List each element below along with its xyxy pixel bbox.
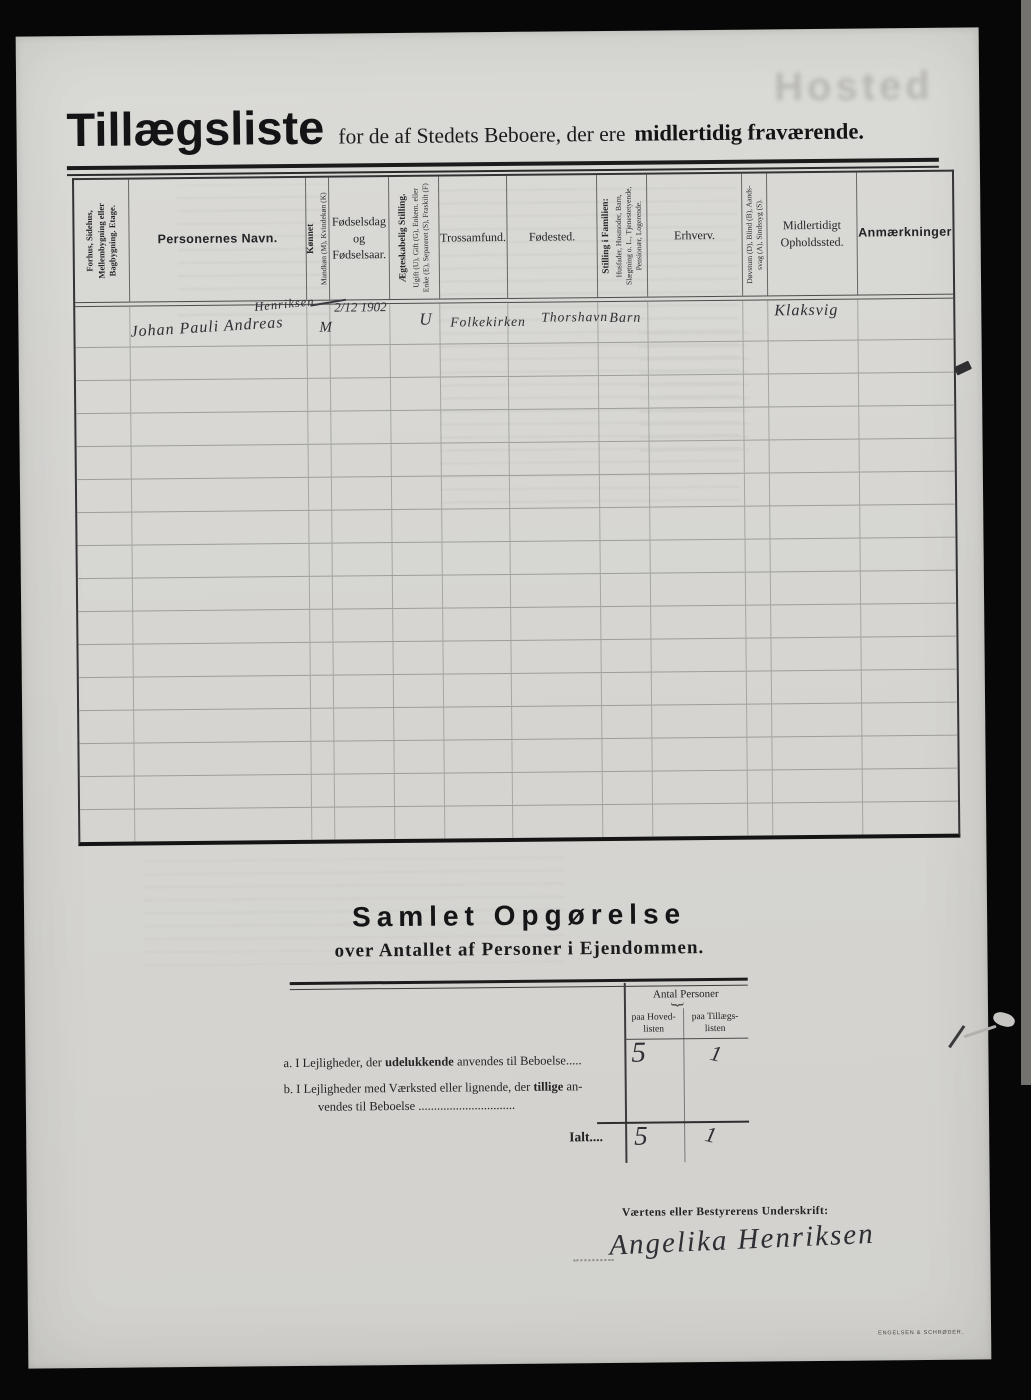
cell-foedested: [509, 409, 599, 442]
cell-navn: [134, 709, 311, 743]
entry-sex: M: [319, 320, 333, 337]
cell-koennet: [309, 445, 332, 477]
cell-aegteskabelig: [391, 345, 441, 377]
cell-opholdssted: [769, 407, 859, 440]
cell-koennet: [309, 511, 332, 543]
cell-opholdssted: [770, 473, 860, 506]
cell-erhverv: [650, 474, 745, 507]
cell-doevstum: [745, 473, 770, 505]
cell-stilling: [599, 343, 649, 375]
cell-anmaerkninger: [862, 670, 957, 703]
row-b-bold: tillige: [533, 1079, 563, 1093]
cell-opholdssted: [772, 671, 862, 704]
cell-aegteskabelig: [392, 477, 442, 509]
cell-trossamfund: [443, 608, 511, 641]
cell-erhverv: [649, 342, 744, 375]
census-table-header-row: Forhus, Sidehus, Mellembygning eller Bag…: [74, 172, 953, 303]
value-a-tillaegslisten: 1: [708, 1040, 725, 1068]
cell-doevstum: [747, 704, 772, 736]
cell-trossamfund: [445, 806, 513, 839]
cell-anmaerkninger: [861, 571, 956, 604]
cell-navn: [134, 676, 311, 710]
cell-foedested: [511, 607, 601, 640]
column-header-trossamfund: Trossamfund.: [439, 176, 508, 299]
cell-anmaerkninger: [862, 703, 957, 736]
column-header-foedested: Fødested.: [507, 175, 598, 298]
entry-temporary-residence: Klaksvig: [774, 302, 838, 321]
cell-navn: [133, 610, 310, 644]
cell-trossamfund: [441, 344, 509, 377]
column-header-aegteskabelig: Ægteskabelig Stilling.Ugift (U), Gift (G…: [389, 177, 440, 299]
summary-table-vline-left: [624, 983, 628, 1163]
cell-foedselsdag: [333, 642, 393, 675]
entry-family-position: Barn: [609, 311, 641, 327]
cell-doevstum: [744, 374, 769, 406]
column-header-foedselsdag: Fødselsdag og Fødselsaar.: [329, 177, 390, 300]
cell-bygning: [76, 381, 131, 414]
scan-edge-sliver: [1021, 0, 1031, 1085]
cell-trossamfund: [442, 443, 510, 476]
cell-erhverv: [650, 540, 745, 573]
cell-koennet: [309, 478, 332, 510]
cell-bygning: [75, 307, 130, 348]
cell-navn: [133, 544, 310, 578]
cell-doevstum: [746, 572, 771, 604]
cell-navn: [133, 643, 310, 677]
page-subtitle: for de af Stedets Beboere, der ere: [338, 122, 625, 150]
cell-erhverv: [650, 507, 745, 540]
row-a-text2: anvendes til Beboelse.....: [457, 1053, 582, 1068]
pen-mark: [948, 1025, 965, 1048]
row-b-text: I Lejligheder med Værksted eller lignend…: [296, 1080, 530, 1096]
cell-navn: [132, 445, 309, 479]
cell-foedested: [510, 508, 600, 541]
cell-erhverv: [653, 771, 748, 804]
cell-stilling: [601, 574, 651, 606]
rotated-label: Døvstum (D), Blind (B), Aands- svag (A),…: [744, 177, 765, 291]
cell-anmaerkninger: [863, 769, 958, 802]
cell-trossamfund: [442, 476, 510, 509]
cell-aegteskabelig: [393, 576, 443, 608]
cell-stilling: [602, 739, 652, 771]
cell-anmaerkninger: [860, 439, 955, 472]
cell-opholdssted: [771, 605, 861, 638]
census-table: Forhus, Sidehus, Mellembygning eller Bag…: [72, 170, 960, 846]
cell-erhverv: [649, 408, 744, 441]
cell-bygning: [79, 744, 134, 777]
cell-stilling: [603, 772, 653, 804]
cell-koennet: [310, 643, 333, 675]
column-header-bygning: Forhus, Sidehus, Mellembygning eller Bag…: [74, 180, 130, 303]
summary-row-b-line1: b. I Lejligheder med Værksted eller lign…: [284, 1079, 583, 1097]
cell-koennet: [308, 346, 331, 378]
cell-koennet: [310, 610, 333, 642]
cell-anmaerkninger: [863, 802, 958, 835]
cell-erhverv: [651, 573, 746, 606]
cell-doevstum: [748, 803, 773, 835]
cell-stilling: [600, 475, 650, 507]
cell-opholdssted: [773, 770, 863, 803]
row-a-prefix: a.: [283, 1056, 292, 1070]
cell-koennet: [311, 676, 334, 708]
cell-doevstum: [746, 638, 771, 670]
scanned-census-page: { "page": { "watermark": "Hosted", "prin…: [0, 0, 1031, 1400]
cell-bygning: [80, 810, 135, 843]
rotated-label: Ægteskabelig Stilling.Ugift (U), Gift (G…: [397, 181, 431, 295]
cell-stilling: [603, 805, 653, 837]
cell-koennet: [312, 775, 335, 807]
signature-dotted-line: [573, 1259, 613, 1261]
ink-smudge: [954, 361, 972, 376]
cell-anmaerkninger: [859, 373, 954, 406]
row-a-text: I Lejligheder, der: [295, 1055, 382, 1070]
cell-navn: [133, 577, 310, 611]
cell-navn: [135, 775, 312, 809]
row-b-text2: an-: [566, 1079, 582, 1093]
printer-mark: ENGELSEN & SCHRØDER.: [878, 1330, 964, 1337]
cell-bygning: [80, 777, 135, 810]
brace-glyph: }: [668, 1001, 685, 1008]
cell-anmaerkninger: [861, 604, 956, 637]
cell-foedselsdag: [332, 477, 392, 510]
cell-navn: [134, 742, 311, 776]
cell-opholdssted: [770, 539, 860, 572]
cell-anmaerkninger: [860, 505, 955, 538]
cell-bygning: [78, 645, 133, 678]
cell-opholdssted: [770, 506, 860, 539]
cell-trossamfund: [441, 377, 509, 410]
cell-doevstum: [748, 770, 773, 802]
cell-opholdssted: [770, 440, 860, 473]
cell-aegteskabelig: [393, 642, 443, 674]
cell-aegteskabelig: [393, 543, 443, 575]
cell-foedselsdag: [332, 510, 392, 543]
paper-sheet: Hosted Tillægsliste for de af Stedets Be…: [16, 27, 992, 1368]
cell-aegteskabelig: [391, 378, 441, 410]
summary-heading-block: Samlet Opgørelse over Antallet af Person…: [269, 897, 770, 963]
cell-opholdssted: [772, 737, 862, 770]
cell-erhverv: [652, 738, 747, 771]
cell-foedselsdag: [331, 345, 391, 378]
cell-anmaerkninger: [860, 538, 955, 571]
cell-navn: [131, 412, 308, 446]
cell-stilling: [600, 442, 650, 474]
cell-erhverv: [651, 606, 746, 639]
rotated-label: KønnetMandkøn (M), Kvindekøn (K): [305, 182, 329, 296]
cell-bygning: [78, 546, 133, 579]
cell-bygning: [79, 711, 134, 744]
cell-erhverv: [652, 705, 747, 738]
cell-erhverv: [653, 804, 748, 837]
signature-name: Angelika Henriksen: [609, 1218, 876, 1263]
cell-foedested: [512, 739, 602, 772]
cell-opholdssted: [769, 374, 859, 407]
cell-erhverv: [651, 639, 746, 672]
cell-doevstum: [747, 671, 772, 703]
page-subtitle-emphasis: midlertidig fraværende.: [634, 119, 864, 147]
cell-navn: [135, 808, 312, 842]
cell-koennet: [310, 544, 333, 576]
entry-marital-status: U: [419, 310, 432, 330]
cell-opholdssted: [773, 803, 863, 836]
cell-aegteskabelig: [395, 807, 445, 839]
cell-foedselsdag: [335, 774, 395, 807]
cell-trossamfund: [441, 410, 509, 443]
cell-stilling: [599, 376, 649, 408]
cell-anmaerkninger: [861, 637, 956, 670]
page-title: Tillægsliste: [66, 100, 324, 157]
cell-bygning: [77, 447, 132, 480]
cell-foedselsdag: [333, 543, 393, 576]
cell-doevstum: [744, 407, 769, 439]
rotated-label: Stilling i Familien:Husfader, Husmoder, …: [600, 179, 644, 293]
cell-foedested: [511, 574, 601, 607]
cell-foedselsdag: [331, 411, 391, 444]
cell-navn: [131, 379, 308, 413]
cell-bygning: [79, 678, 134, 711]
value-total-tillaegslisten: 1: [703, 1121, 720, 1149]
entry-faith: Folkekirken: [450, 314, 526, 331]
cell-koennet: [310, 577, 333, 609]
cell-stilling: [601, 640, 651, 672]
cell-trossamfund: [444, 707, 512, 740]
cell-trossamfund: [445, 773, 513, 806]
cell-foedselsdag: [332, 444, 392, 477]
column-header-anmaerkninger: Anmærkninger: [857, 172, 953, 295]
cell-foedselsdag: [331, 378, 391, 411]
cell-stilling: [600, 541, 650, 573]
cell-koennet: [311, 742, 334, 774]
cell-opholdssted: [771, 572, 861, 605]
cell-anmaerkninger: [858, 299, 953, 340]
summary-total-label: Ialt....: [569, 1129, 603, 1145]
cell-opholdssted: [772, 704, 862, 737]
cell-erhverv: [648, 301, 743, 342]
column-header-doevstum: Døvstum (D), Blind (B), Aands- svag (A),…: [742, 173, 768, 295]
summary-row-a: a. I Lejligheder, der udelukkende anvend…: [283, 1053, 581, 1071]
signature-label: Værtens eller Bestyrerens Underskrift:: [622, 1205, 829, 1219]
entry-birthplace: Thorshavn: [541, 309, 608, 326]
cell-stilling: [602, 673, 652, 705]
cell-foedested: [512, 706, 602, 739]
cell-foedselsdag: [335, 807, 395, 840]
cell-aegteskabelig: [394, 741, 444, 773]
cell-erhverv: [650, 441, 745, 474]
column-header-navn: Personernes Navn.: [129, 178, 307, 302]
cell-anmaerkninger: [859, 406, 954, 439]
summary-title: Samlet Opgørelse: [269, 897, 769, 934]
cell-foedested: [510, 475, 600, 508]
cell-foedested: [512, 673, 602, 706]
cell-koennet: [308, 412, 331, 444]
cell-anmaerkninger: [862, 736, 957, 769]
cell-stilling: [601, 607, 651, 639]
page-heading: Tillægsliste for de af Stedets Beboere, …: [66, 95, 864, 158]
cell-anmaerkninger: [860, 472, 955, 505]
cell-doevstum: [747, 737, 772, 769]
cell-aegteskabelig: [393, 609, 443, 641]
cell-trossamfund: [444, 740, 512, 773]
cell-foedselsdag: [333, 576, 393, 609]
cell-aegteskabelig: [395, 774, 445, 806]
cell-trossamfund: [443, 542, 511, 575]
cell-foedested: [513, 772, 603, 805]
cell-trossamfund: [442, 509, 510, 542]
cell-bygning: [77, 513, 132, 546]
cell-erhverv: [649, 375, 744, 408]
cell-stilling: [600, 508, 650, 540]
entry-birthdate: 2/12 1902: [334, 299, 387, 316]
cell-aegteskabelig: [392, 510, 442, 542]
cell-erhverv: [652, 672, 747, 705]
cell-opholdssted: [771, 638, 861, 671]
cell-opholdssted: [769, 341, 859, 374]
summary-subtitle: over Antallet af Personer i Ejendommen.: [269, 936, 769, 963]
cell-doevstum: [746, 605, 771, 637]
cell-koennet: [312, 808, 335, 840]
cell-navn: [132, 511, 309, 545]
cell-aegteskabelig: [392, 444, 442, 476]
rotated-label: Forhus, Sidehus, Mellembygning eller Bag…: [84, 184, 120, 298]
column-header-opholdssted: Midlertidigt Opholdssted.: [767, 173, 858, 296]
cell-trossamfund: [444, 674, 512, 707]
summary-row-b-line2: vendes til Beboelse ....................…: [318, 1098, 515, 1115]
cell-foedested: [510, 442, 600, 475]
cell-navn: [131, 346, 308, 380]
row-b-prefix: b.: [284, 1082, 294, 1096]
value-total-hovedlisten: 5: [634, 1121, 649, 1152]
cell-doevstum: [745, 506, 770, 538]
cell-foedested: [509, 343, 599, 376]
cell-aegteskabelig: [391, 411, 441, 443]
cell-navn: [132, 478, 309, 512]
cell-bygning: [76, 414, 131, 447]
cell-foedselsdag: [334, 675, 394, 708]
summary-col-hovedlisten: paa Hoved- listen: [624, 1012, 683, 1036]
column-header-koennet: KønnetMandkøn (M), Kvindekøn (K): [306, 178, 330, 300]
cell-doevstum: [743, 300, 768, 340]
cell-stilling: [599, 409, 649, 441]
summary-col-group-label: Antal Personer: [626, 988, 746, 1003]
cell-stilling: [602, 706, 652, 738]
cell-anmaerkninger: [859, 340, 954, 373]
cell-bygning: [78, 612, 133, 645]
cell-foedested: [509, 376, 599, 409]
cell-doevstum: [745, 440, 770, 472]
value-a-hovedlisten: 5: [631, 1037, 647, 1070]
cell-bygning: [77, 480, 132, 513]
summary-table-hline-total: [597, 1121, 749, 1124]
cell-aegteskabelig: [394, 708, 444, 740]
cell-aegteskabelig: [390, 304, 440, 344]
row-a-bold: udelukkende: [385, 1054, 454, 1069]
cell-bygning: [78, 579, 133, 612]
cell-foedested: [513, 805, 603, 838]
cell-foedselsdag: [334, 708, 394, 741]
column-header-erhverv: Erhverv.: [647, 174, 743, 297]
cell-foedselsdag: [334, 741, 394, 774]
cell-koennet: [311, 709, 334, 741]
cell-doevstum: [745, 539, 770, 571]
cell-foedested: [511, 640, 601, 673]
column-header-stilling: Stilling i Familien:Husfader, Husmoder, …: [597, 175, 648, 297]
cell-bygning: [76, 348, 131, 381]
cell-trossamfund: [443, 575, 511, 608]
cell-foedselsdag: [333, 609, 393, 642]
cell-aegteskabelig: [394, 675, 444, 707]
cell-trossamfund: [443, 641, 511, 674]
cell-koennet: [308, 379, 331, 411]
cell-doevstum: [744, 341, 769, 373]
summary-col-tillaegslisten: paa Tillægs- listen: [684, 1012, 746, 1036]
cell-foedested: [511, 541, 601, 574]
